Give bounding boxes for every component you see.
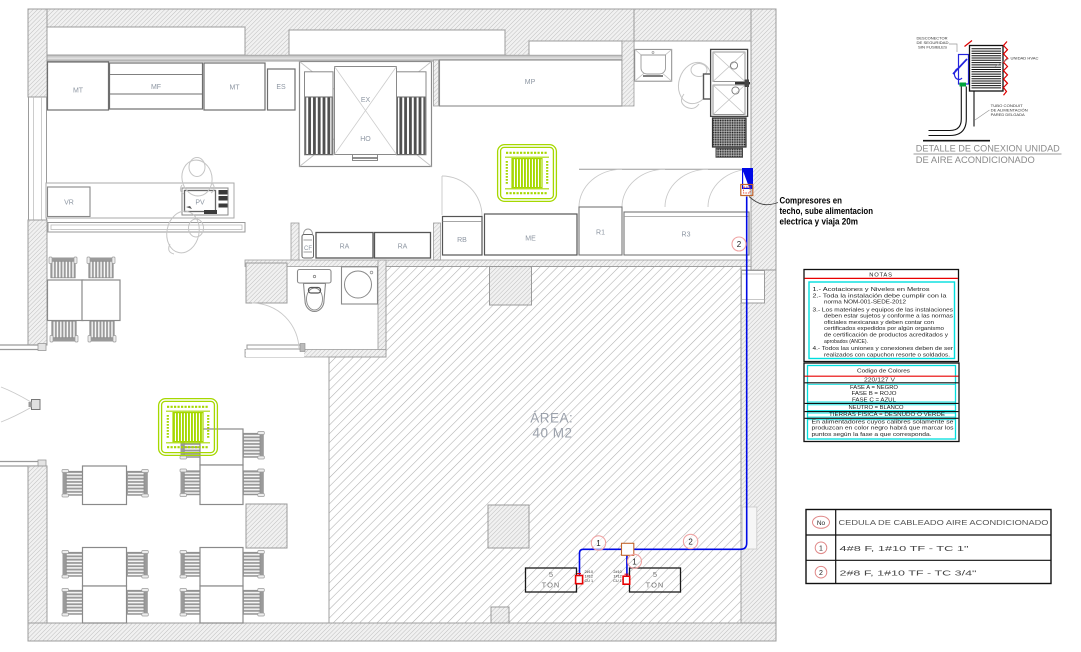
svg-text:Compresores en: Compresores en	[780, 196, 843, 207]
svg-text:ES: ES	[276, 84, 286, 91]
svg-text:1: 1	[819, 546, 823, 553]
svg-text:realizados con capuchon resort: realizados con capuchon resorte o soldad…	[824, 352, 950, 358]
svg-text:de certificación de productos: de certificación de productos acreditado…	[824, 333, 948, 339]
svg-text:4#8 F, 1#10 TF - TC 1": 4#8 F, 1#10 TF - TC 1"	[840, 544, 970, 553]
svg-text:DETALLE DE CONEXION UNIDAD: DETALLE DE CONEXION UNIDAD	[916, 144, 1060, 154]
svg-text:2: 2	[688, 538, 693, 547]
svg-text:EX: EX	[361, 97, 371, 104]
svg-text:UNIDAD HVAC: UNIDAD HVAC	[1011, 56, 1039, 61]
svg-text:TON: TON	[646, 581, 665, 590]
svg-text:En alimentadores cuyos calibre: En alimentadores cuyos calibres solament…	[812, 420, 954, 426]
svg-text:1: 1	[632, 557, 637, 566]
svg-text:MF: MF	[151, 84, 161, 91]
svg-text:RB: RB	[457, 237, 467, 244]
svg-text:Codigo de Colores: Codigo de Colores	[857, 369, 910, 375]
svg-text:2#10: 2#10	[585, 570, 593, 574]
svg-text:CU 1: CU 1	[585, 579, 594, 583]
svg-text:techo, sube alimentacion: techo, sube alimentacion	[780, 206, 874, 217]
svg-text:2#10: 2#10	[613, 570, 621, 574]
svg-text:5: 5	[653, 570, 657, 579]
svg-text:2: 2	[737, 240, 742, 249]
svg-text:ÁREA:: ÁREA:	[530, 411, 573, 426]
svg-text:1#12: 1#12	[613, 574, 621, 578]
svg-text:1.- Acotaciones y Niveles en M: 1.- Acotaciones y Niveles en Metros	[813, 287, 930, 293]
svg-text:VR: VR	[64, 200, 74, 207]
svg-text:aprobados (ANCE).: aprobados (ANCE).	[824, 339, 868, 345]
svg-text:FASE B = ROJO: FASE B = ROJO	[852, 391, 897, 397]
svg-text:oficiales mexicanas y deben co: oficiales mexicanas y deben contar con	[824, 320, 934, 326]
svg-text:1#12: 1#12	[585, 574, 593, 578]
svg-text:2#8 F, 1#10 TF - TC 3/4": 2#8 F, 1#10 TF - TC 3/4"	[840, 569, 978, 578]
svg-text:certificados expedidos por alg: certificados expedidos por algún organis…	[824, 326, 944, 332]
svg-text:CF: CF	[304, 246, 312, 252]
svg-text:puntos según la fase a que cor: puntos según la fase a que corresponda.	[812, 432, 932, 438]
svg-text:MP: MP	[525, 79, 536, 86]
svg-text:PV: PV	[195, 200, 205, 207]
svg-text:MT: MT	[73, 88, 84, 95]
svg-text:R1: R1	[596, 230, 605, 237]
svg-text:produzcan en color negro habrá: produzcan en color negro habrá que marca…	[812, 426, 954, 432]
svg-text:PARED DELGADA: PARED DELGADA	[991, 112, 1025, 117]
svg-text:CU 1: CU 1	[613, 579, 622, 583]
svg-text:FASE A = NEGRO: FASE A = NEGRO	[850, 385, 898, 391]
svg-text:DE AIRE ACONDICIONADO: DE AIRE ACONDICIONADO	[916, 155, 1035, 165]
svg-text:SIN FUSIBLES: SIN FUSIBLES	[918, 45, 947, 50]
svg-text:FASE C = AZUL: FASE C = AZUL	[852, 398, 896, 404]
svg-text:electrica y viaja 20m: electrica y viaja 20m	[780, 217, 859, 228]
svg-text:5: 5	[549, 570, 553, 579]
svg-text:norma NOM-001-SEDE-2012: norma NOM-001-SEDE-2012	[824, 300, 906, 306]
svg-text:MT: MT	[229, 85, 240, 92]
svg-text:RA: RA	[398, 244, 408, 251]
svg-text:R3: R3	[682, 232, 691, 239]
svg-text:No: No	[817, 520, 826, 527]
svg-text:TON: TON	[542, 581, 561, 590]
svg-text:RA: RA	[340, 244, 350, 251]
svg-text:deben estar sujetos y conforme: deben estar sujetos y conforme a las nor…	[824, 314, 953, 320]
svg-text:ME: ME	[525, 236, 536, 243]
svg-text:CEDULA DE CABLEADO AIRE AC: CEDULA DE CABLEADO AIRE ACONDICIONADO	[839, 518, 1049, 527]
svg-text:1: 1	[596, 539, 601, 548]
svg-text:HO: HO	[360, 136, 371, 143]
svg-text:40 M2: 40 M2	[532, 426, 572, 441]
svg-text:2: 2	[819, 570, 823, 577]
svg-text:3.- Los materiales y equipos d: 3.- Los materiales y equipos de las inst…	[813, 307, 954, 313]
svg-text:NOTAS: NOTAS	[869, 273, 893, 279]
svg-text:4.- Todos las uniones y conexi: 4.- Todos las uniones y conexiones deben…	[813, 346, 954, 352]
